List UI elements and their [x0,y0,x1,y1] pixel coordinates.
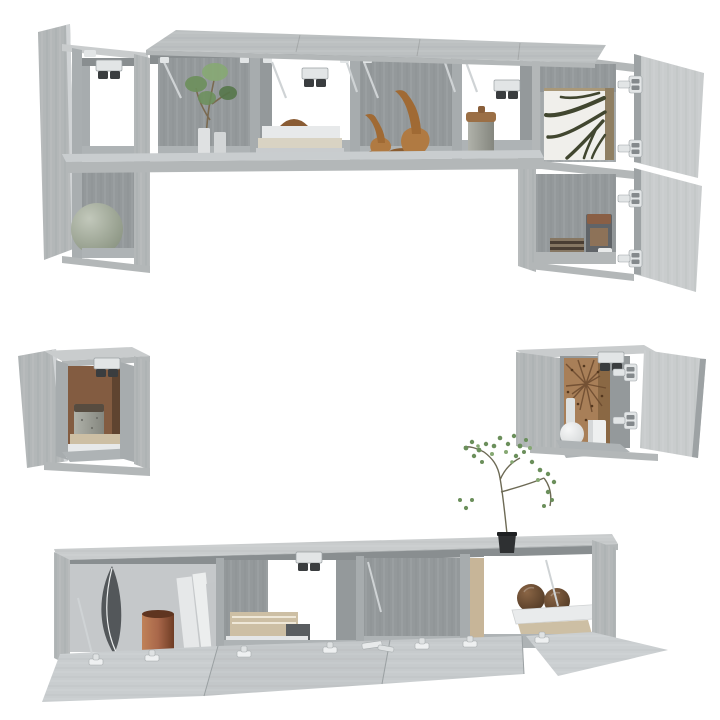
left-tall-cabinet [38,24,150,273]
plant-pot [497,532,517,553]
upper-compartment [82,50,134,158]
glass-bottle [566,398,575,424]
divider [350,56,360,160]
right-inner-wall [120,362,134,462]
divider [216,558,224,656]
bottom-panel [44,462,150,476]
divider [452,56,462,160]
right-cube-cabinet [516,345,706,461]
compartment-3 [364,558,460,650]
ball-lamp [71,203,123,255]
vase [198,128,210,156]
product-photo [0,0,720,720]
top-wall-unit [38,24,704,292]
floor [536,252,616,264]
right-tall-cabinet [518,52,704,292]
compartment-1 [70,564,221,660]
left-inner-wall [56,360,68,460]
left-cube-cabinet [18,347,150,476]
hinge-icon [618,140,642,157]
hinge-icon [618,190,642,207]
lidded-jar [466,106,496,156]
hinge-icon [618,250,642,267]
vase [214,132,226,156]
bottom-tv-bench [42,534,668,702]
furniture-scene [0,0,720,720]
leaf-art-panel [544,88,614,160]
hinge-icon [84,50,96,57]
hinge-icon [618,76,642,93]
cabinet-bottom-panel [530,262,634,281]
plant-stems [464,447,551,534]
